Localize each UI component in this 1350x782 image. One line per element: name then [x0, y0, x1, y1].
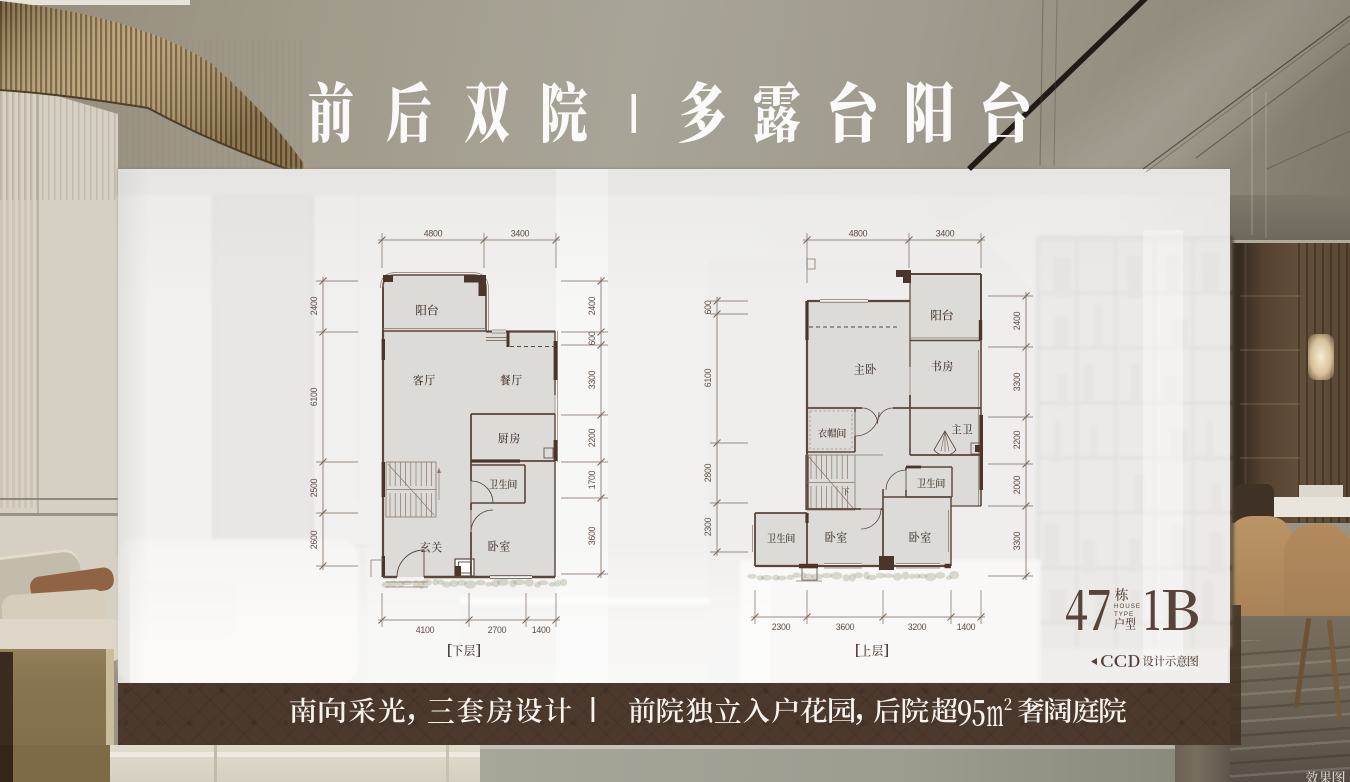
svg-text:3400: 3400 [936, 229, 955, 239]
svg-text:3600: 3600 [587, 526, 597, 545]
svg-text:6100: 6100 [703, 368, 713, 387]
svg-text:600: 600 [587, 331, 597, 345]
svg-text:2600: 2600 [309, 530, 319, 549]
svg-text:3300: 3300 [587, 370, 597, 389]
svg-text:2000: 2000 [1012, 475, 1022, 494]
svg-text:2300: 2300 [772, 622, 791, 632]
svg-text:6100: 6100 [309, 387, 319, 406]
svg-text:1400: 1400 [957, 622, 976, 632]
svg-text:2700: 2700 [488, 625, 507, 635]
svg-text:1700: 1700 [587, 470, 597, 489]
svg-text:4800: 4800 [424, 229, 443, 239]
svg-text:2800: 2800 [703, 463, 713, 482]
svg-text:2400: 2400 [587, 296, 597, 315]
svg-text:2300: 2300 [703, 517, 713, 536]
svg-text:3600: 3600 [836, 622, 855, 632]
svg-text:2400: 2400 [309, 296, 319, 315]
svg-text:HOUSE: HOUSE [1114, 603, 1141, 610]
svg-text:2200: 2200 [587, 428, 597, 447]
svg-text:3300: 3300 [1012, 372, 1022, 391]
svg-text:3200: 3200 [908, 622, 927, 632]
svg-text:600: 600 [703, 300, 713, 314]
svg-text:2200: 2200 [1012, 430, 1022, 449]
svg-text:3400: 3400 [511, 229, 530, 239]
svg-text:4800: 4800 [849, 229, 868, 239]
svg-text:2500: 2500 [309, 478, 319, 497]
svg-text:TYPE: TYPE [1114, 611, 1134, 618]
svg-text:2400: 2400 [1012, 311, 1022, 330]
svg-text:4100: 4100 [416, 625, 435, 635]
svg-text:1400: 1400 [532, 625, 551, 635]
svg-text:3300: 3300 [1012, 531, 1022, 550]
